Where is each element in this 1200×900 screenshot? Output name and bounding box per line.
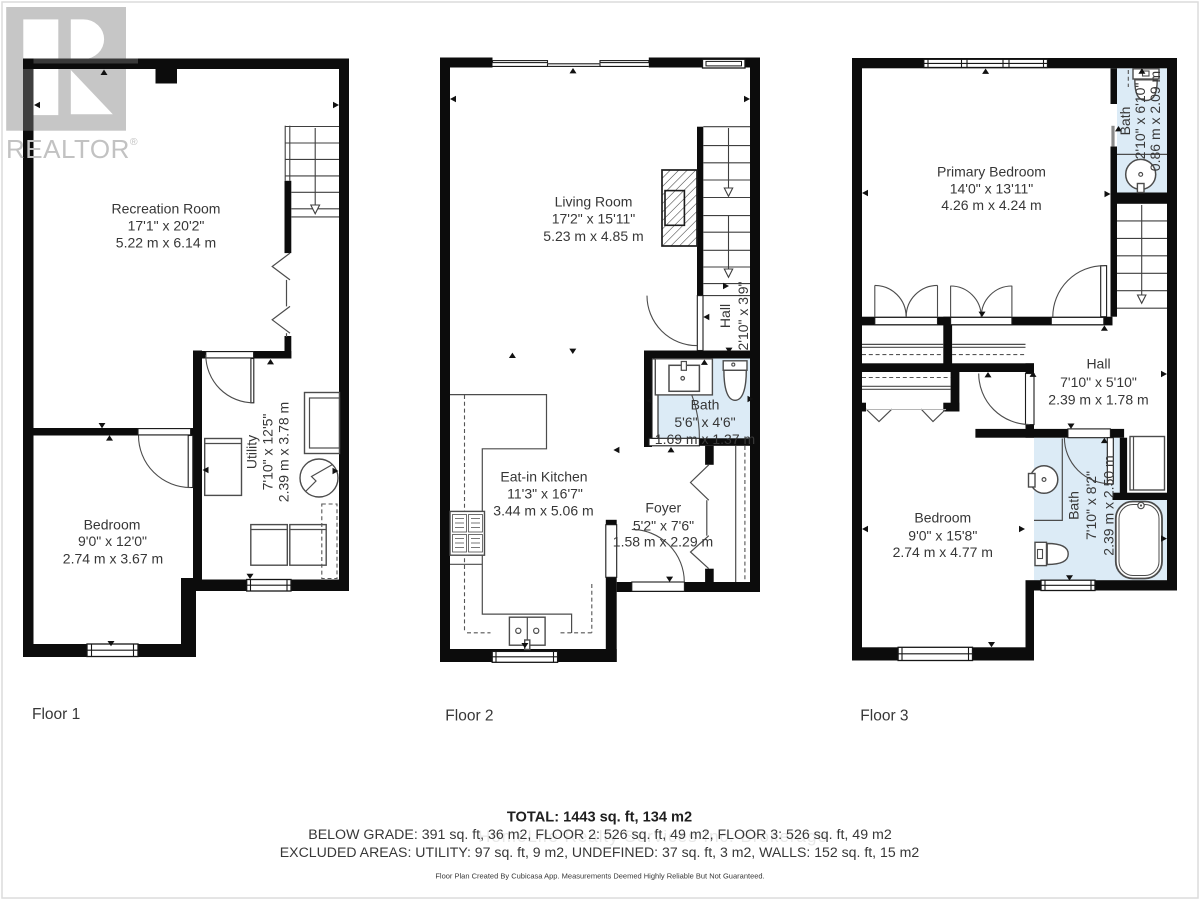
svg-text:0.86 m x 2.09 m: 0.86 m x 2.09 m: [1147, 71, 1163, 171]
svg-text:2.39 m x 1.78 m: 2.39 m x 1.78 m: [1048, 392, 1148, 408]
svg-text:5.23 m x 4.85 m: 5.23 m x 4.85 m: [543, 228, 643, 244]
svg-text:Eat-in Kitchen: Eat-in Kitchen: [500, 469, 587, 485]
svg-text:1.69 m x 1.37 m: 1.69 m x 1.37 m: [655, 431, 755, 447]
svg-text:14'0" x 13'11": 14'0" x 13'11": [950, 181, 1034, 197]
svg-text:TOTAL: 1443 sq. ft, 134 m2: TOTAL: 1443 sq. ft, 134 m2: [507, 809, 692, 825]
svg-text:Primary Bedroom: Primary Bedroom: [937, 164, 1046, 180]
svg-text:Recreation Room: Recreation Room: [112, 201, 221, 217]
svg-text:Bedroom: Bedroom: [914, 510, 971, 526]
svg-text:Hall: Hall: [1086, 356, 1110, 372]
svg-text:7'10" x 12'5": 7'10" x 12'5": [260, 414, 276, 491]
svg-text:2'10" x 3'9": 2'10" x 3'9": [735, 281, 751, 350]
svg-text:17'1" x 20'2": 17'1" x 20'2": [128, 218, 205, 234]
svg-text:4.26 m x 4.24 m: 4.26 m x 4.24 m: [941, 197, 1041, 213]
svg-text:Bedroom: Bedroom: [84, 517, 141, 533]
svg-text:2.39 m x 2.50 m: 2.39 m x 2.50 m: [1101, 455, 1117, 555]
svg-text:11'3" x 16'7": 11'3" x 16'7": [507, 486, 583, 502]
svg-text:BELOW GRADE: 391 sq. ft, 36 m2: BELOW GRADE: 391 sq. ft, 36 m2, FLOOR 2:…: [308, 827, 892, 843]
svg-text:7'10" x 8'2": 7'10" x 8'2": [1083, 471, 1099, 540]
svg-text:2'10" x 6'10": 2'10" x 6'10": [1132, 83, 1148, 160]
svg-text:Floor 3: Floor 3: [860, 708, 908, 725]
svg-text:Floor Plan Created By Cubicasa: Floor Plan Created By Cubicasa App. Meas…: [435, 872, 764, 881]
svg-text:2.74 m x 4.77 m: 2.74 m x 4.77 m: [893, 544, 993, 560]
svg-text:Foyer: Foyer: [645, 500, 681, 516]
svg-text:17'2" x 15'11": 17'2" x 15'11": [552, 211, 636, 227]
svg-text:Bath: Bath: [691, 397, 720, 413]
svg-text:5'2" x 7'6": 5'2" x 7'6": [633, 518, 694, 534]
svg-text:5'6" x 4'6": 5'6" x 4'6": [674, 414, 735, 430]
svg-text:Bath: Bath: [1117, 107, 1133, 136]
svg-text:5.22 m x 6.14 m: 5.22 m x 6.14 m: [116, 235, 216, 251]
svg-text:Hall: Hall: [717, 304, 733, 328]
svg-text:7'10" x 5'10": 7'10" x 5'10": [1060, 374, 1137, 390]
svg-text:Living Room: Living Room: [555, 193, 633, 209]
svg-text:2.74 m x 3.67 m: 2.74 m x 3.67 m: [63, 551, 163, 567]
svg-text:REALTOR®: REALTOR®: [6, 134, 138, 164]
svg-text:Floor 1: Floor 1: [32, 706, 80, 723]
svg-text:2.39 m x 3.78 m: 2.39 m x 3.78 m: [276, 402, 292, 502]
svg-text:Utility: Utility: [244, 435, 260, 469]
svg-text:3.44 m x 5.06 m: 3.44 m x 5.06 m: [493, 503, 593, 519]
svg-text:9'0" x 15'8": 9'0" x 15'8": [908, 528, 977, 544]
svg-text:Bath: Bath: [1066, 491, 1082, 520]
svg-text:Floor 2: Floor 2: [445, 708, 493, 725]
svg-text:EXCLUDED AREAS: UTILITY: 97 sq: EXCLUDED AREAS: UTILITY: 97 sq. ft, 9 m2…: [280, 844, 920, 860]
svg-text:1.58 m x 2.29 m: 1.58 m x 2.29 m: [613, 534, 713, 550]
svg-text:9'0" x 12'0": 9'0" x 12'0": [78, 533, 147, 549]
